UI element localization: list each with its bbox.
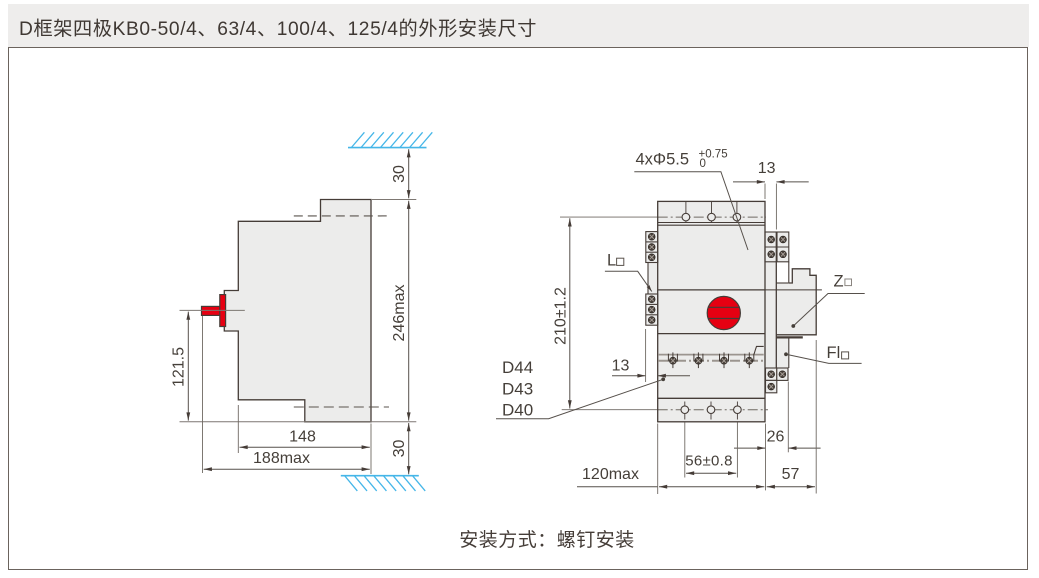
svg-text:D40: D40 [502, 401, 533, 420]
svg-text:26: 26 [767, 429, 785, 446]
svg-text:57: 57 [782, 466, 800, 483]
svg-text:4xΦ5.5: 4xΦ5.5 [636, 151, 690, 169]
svg-text:Fl: Fl [827, 344, 841, 362]
svg-text:L: L [607, 252, 616, 270]
svg-text:D44: D44 [502, 358, 533, 377]
svg-text:30: 30 [391, 440, 408, 458]
svg-text:121.5: 121.5 [171, 347, 188, 387]
svg-text:Z: Z [834, 272, 844, 290]
svg-text:246max: 246max [391, 285, 408, 342]
svg-text:120max: 120max [582, 466, 639, 483]
svg-text:30: 30 [391, 165, 408, 183]
svg-text:210±1.2: 210±1.2 [552, 287, 569, 345]
svg-text:13: 13 [612, 358, 630, 375]
svg-text:148: 148 [289, 429, 316, 446]
svg-text:188max: 188max [253, 450, 310, 467]
svg-text:13: 13 [758, 160, 776, 177]
svg-text:0: 0 [700, 158, 706, 170]
svg-text:56±0.8: 56±0.8 [685, 453, 733, 470]
svg-text:D43: D43 [502, 380, 533, 399]
